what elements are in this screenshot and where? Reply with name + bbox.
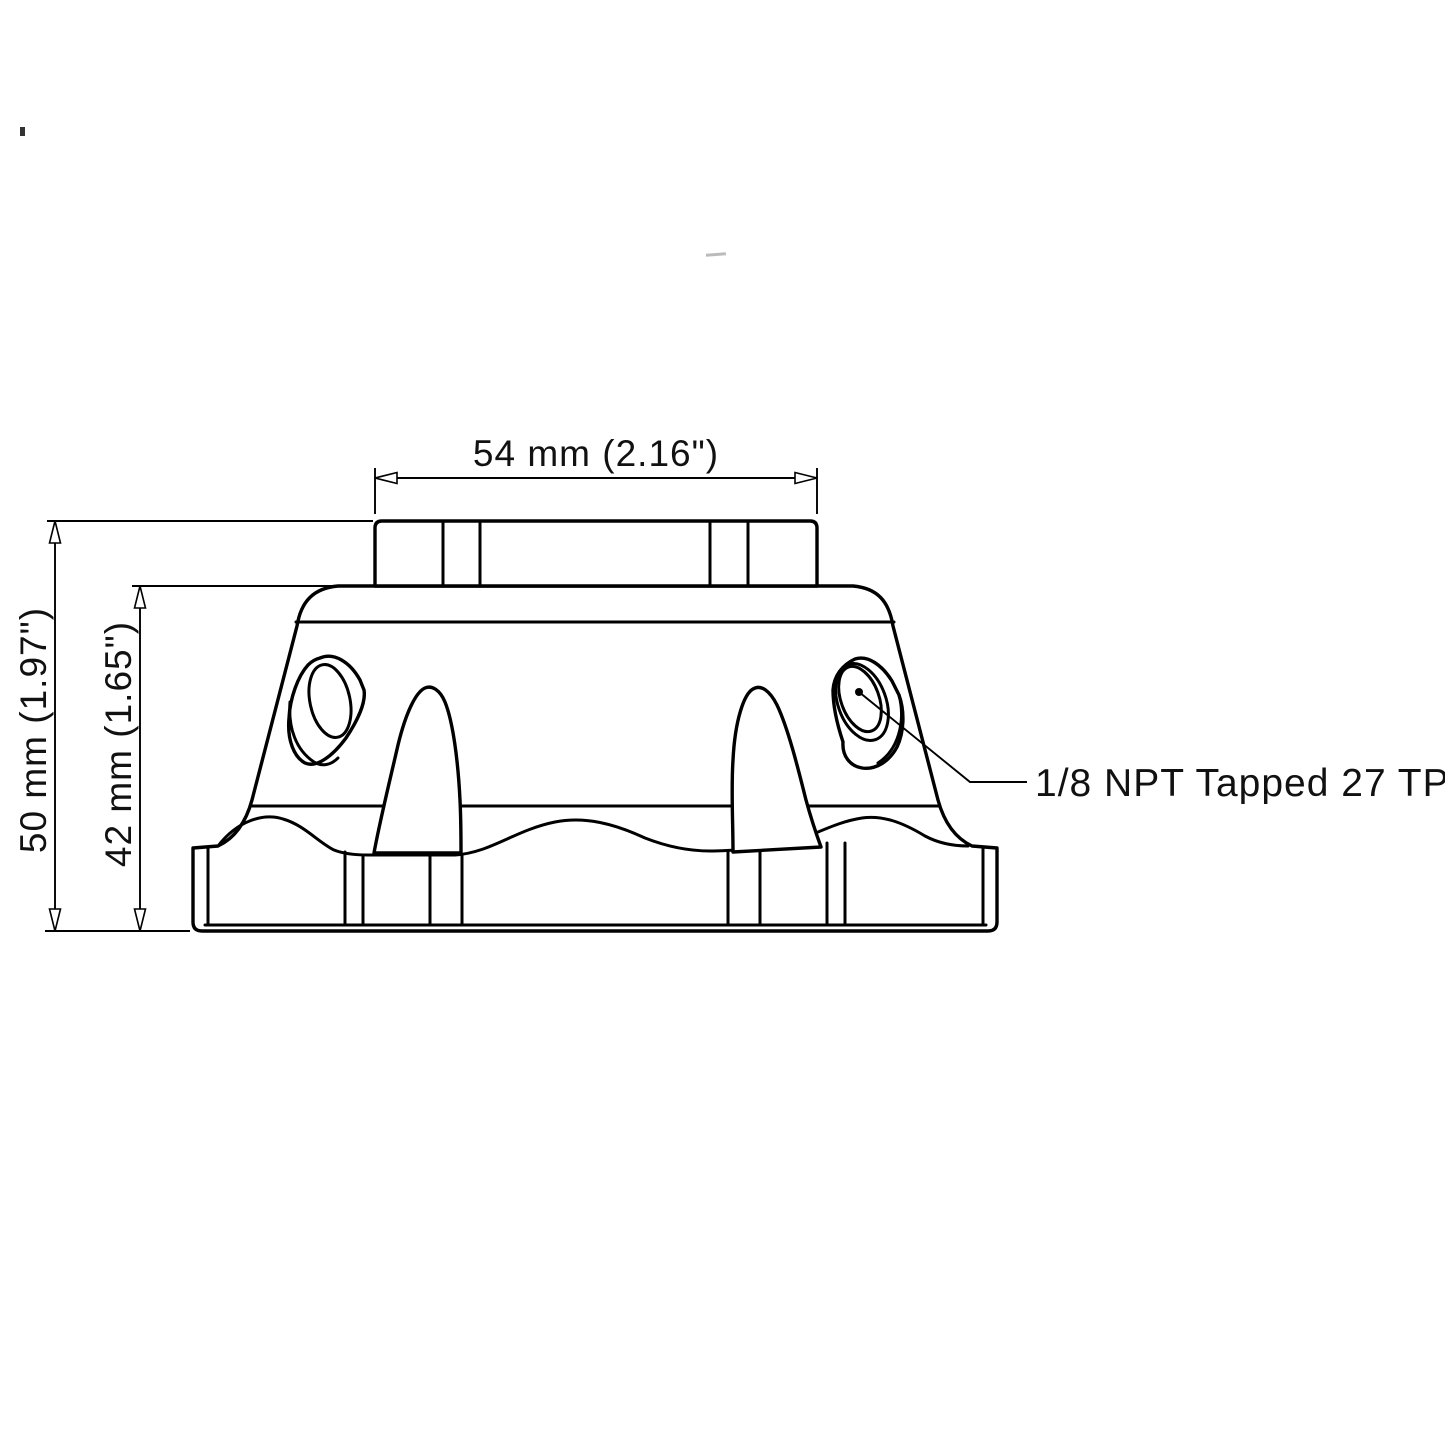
npt-callout-label: 1/8 NPT Tapped 27 TPI [1035, 762, 1445, 805]
dim-arrow-down-icon [50, 909, 61, 931]
speck-artifact [20, 127, 25, 136]
top-width-label: 54 mm (2.16") [473, 433, 719, 474]
dim-arrow-left-icon [375, 473, 397, 484]
dimension-top-width: 54 mm (2.16") [375, 433, 817, 514]
top-boss-outline [375, 521, 817, 586]
overall-height-label: 50 mm (1.97") [13, 607, 54, 853]
npt-callout: 1/8 NPT Tapped 27 TPI [855, 688, 1445, 805]
speck-artifact [706, 252, 726, 256]
drawing-canvas: 54 mm (2.16") 50 mm (1.97") 42 mm (1.65"… [0, 0, 1445, 1445]
dim-arrow-right-icon [795, 473, 817, 484]
dim-arrow-down-icon [135, 909, 146, 931]
dim-arrow-up-icon [50, 521, 61, 543]
top-boss [375, 521, 817, 586]
technical-drawing: 54 mm (2.16") 50 mm (1.97") 42 mm (1.65"… [0, 0, 1445, 1445]
body-height-label: 42 mm (1.65") [98, 621, 139, 867]
dim-arrow-up-icon [135, 586, 146, 608]
